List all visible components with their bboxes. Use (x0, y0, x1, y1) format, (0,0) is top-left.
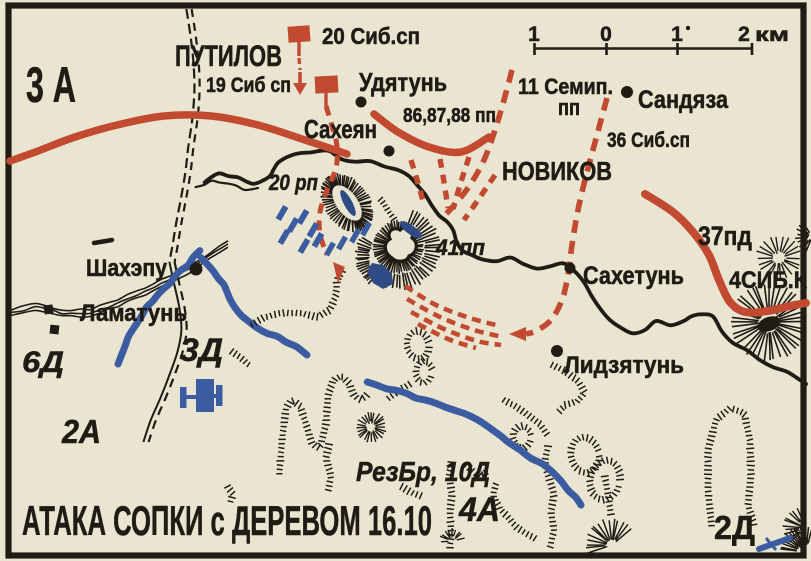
svg-text:4СИБ.К: 4СИБ.К (729, 267, 807, 294)
svg-text:20 Сиб.сп: 20 Сиб.сп (322, 23, 420, 49)
svg-text:Шахэпу: Шахэпу (86, 255, 168, 282)
svg-text:4А: 4А (458, 491, 500, 529)
svg-text:2: 2 (738, 23, 750, 46)
svg-text:км: км (755, 25, 789, 46)
svg-text:86,87,88 пп: 86,87,88 пп (403, 105, 496, 127)
svg-text:Ламатунь: Ламатунь (80, 300, 187, 327)
svg-text:0: 0 (600, 23, 612, 46)
svg-text:Лидзятунь: Лидзятунь (564, 352, 684, 379)
svg-text:Сахетунь: Сахетунь (583, 262, 684, 290)
svg-text:20 рп: 20 рп (268, 170, 318, 195)
svg-text:2А: 2А (61, 413, 101, 450)
svg-text:41пп: 41пп (435, 235, 485, 260)
svg-text:3Д: 3Д (180, 332, 223, 368)
svg-text:пп: пп (558, 95, 580, 120)
svg-text:6Д: 6Д (22, 346, 64, 379)
svg-text:19 Сиб сп: 19 Сиб сп (206, 74, 291, 97)
svg-text:1: 1 (671, 23, 683, 46)
svg-text:2Д: 2Д (714, 509, 755, 546)
svg-text:РезБр, 10Д: РезБр, 10Д (356, 456, 490, 487)
svg-text:37пд: 37пд (698, 221, 752, 251)
svg-text:Сандяза: Сандяза (638, 86, 729, 114)
svg-text:36 Сиб.сп: 36 Сиб.сп (607, 129, 690, 152)
svg-text:Удятунь: Удятунь (359, 67, 447, 97)
svg-text:3 А: 3 А (26, 57, 76, 113)
svg-text:АТАКА СОПКИ с ДЕРЕВОМ 16.10: АТАКА СОПКИ с ДЕРЕВОМ 16.10 (22, 497, 432, 544)
svg-text:НОВИКОВ: НОВИКОВ (502, 156, 612, 186)
svg-text:Сахеян: Сахеян (304, 114, 377, 144)
svg-text:ПУТИЛОВ: ПУТИЛОВ (175, 40, 282, 73)
svg-text:1: 1 (528, 23, 540, 46)
